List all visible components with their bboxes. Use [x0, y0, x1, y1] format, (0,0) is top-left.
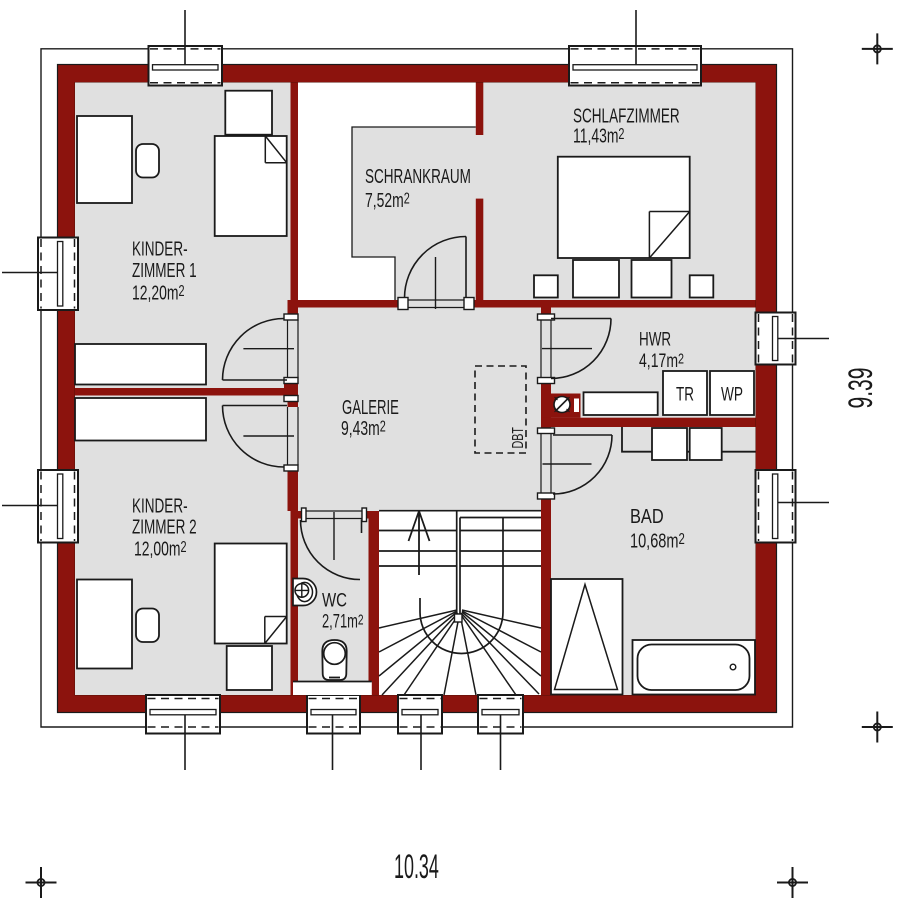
svg-text:ZIMMER 2: ZIMMER 2 [132, 515, 197, 539]
svg-text:10,68m2: 10,68m2 [630, 529, 685, 552]
svg-text:WC: WC [322, 590, 347, 611]
svg-text:9,43m2: 9,43m2 [341, 416, 386, 439]
svg-text:BAD: BAD [630, 504, 664, 527]
svg-text:4,17m2: 4,17m2 [639, 350, 684, 372]
svg-text:ZIMMER 1: ZIMMER 1 [132, 258, 197, 282]
svg-text:7,52m2: 7,52m2 [365, 188, 410, 211]
svg-text:9.39: 9.39 [842, 368, 881, 409]
svg-text:GALERIE: GALERIE [342, 395, 399, 419]
svg-text:12,20m2: 12,20m2 [132, 281, 185, 304]
svg-text:SCHRANKRAUM: SCHRANKRAUM [365, 164, 471, 188]
svg-text:10.34: 10.34 [394, 847, 439, 886]
svg-text:2,71m2: 2,71m2 [322, 610, 364, 632]
svg-text:12,00m2: 12,00m2 [134, 537, 187, 560]
svg-text:TR: TR [676, 384, 694, 405]
svg-text:11,43m2: 11,43m2 [573, 124, 624, 147]
svg-text:HWR: HWR [639, 328, 671, 350]
svg-text:DBT: DBT [509, 427, 526, 448]
svg-text:KINDER-: KINDER- [132, 237, 188, 261]
svg-text:WP: WP [721, 383, 743, 405]
